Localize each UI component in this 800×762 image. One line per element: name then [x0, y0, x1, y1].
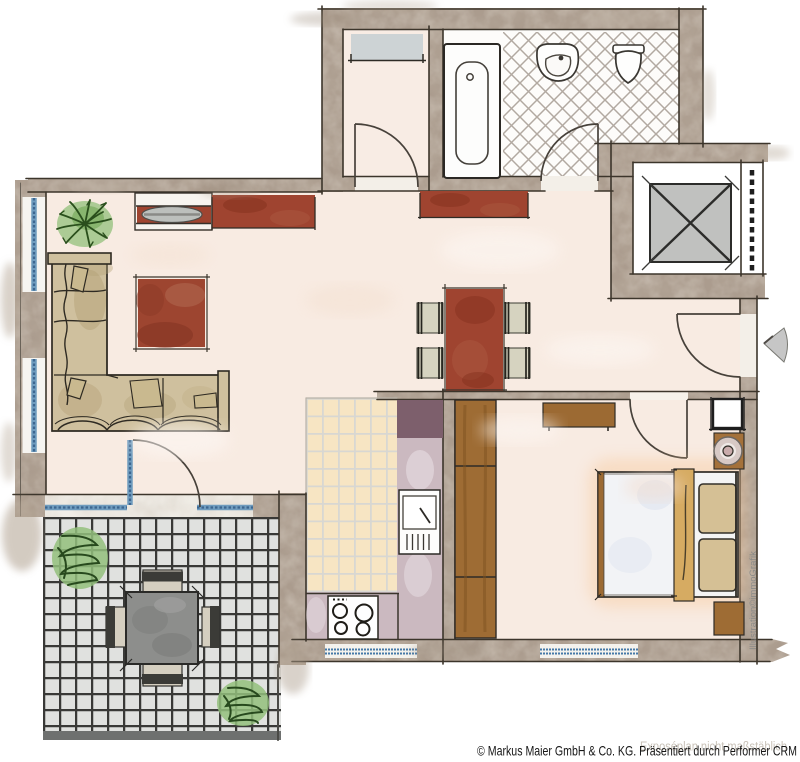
- svg-text:© Markus Maier GmbH & Co. KG.: © Markus Maier GmbH & Co. KG. Präsentier…: [477, 743, 797, 759]
- svg-text:Illustration©immoGrafik: Illustration©immoGrafik: [748, 551, 759, 650]
